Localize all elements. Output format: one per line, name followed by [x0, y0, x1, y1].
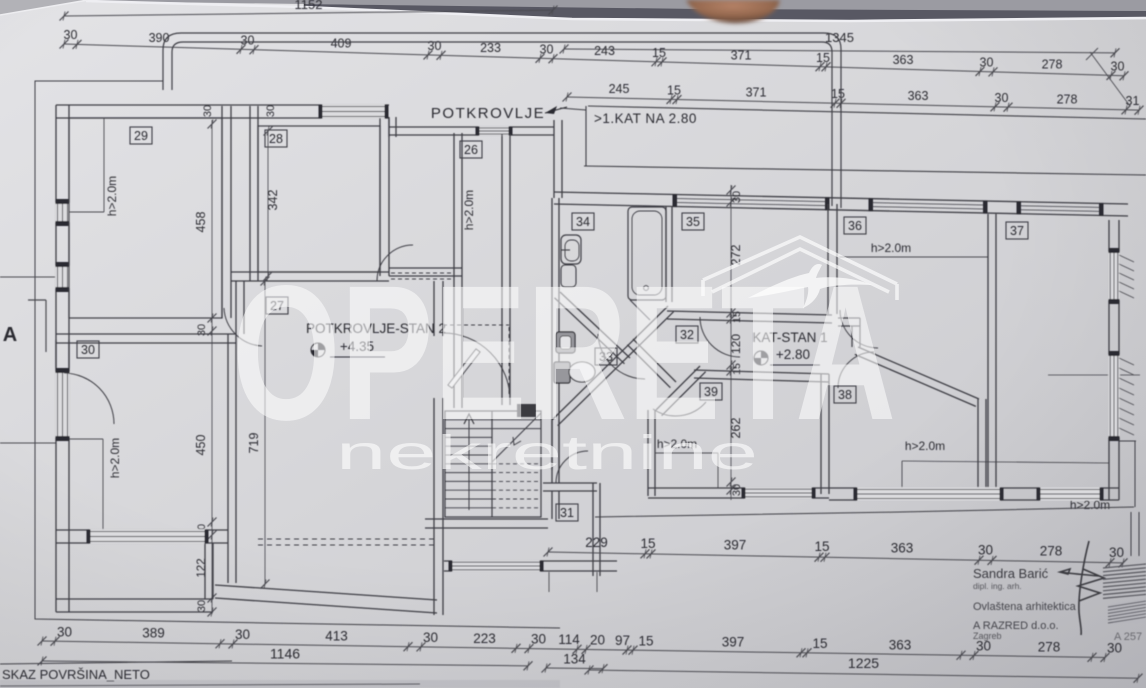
- svg-text:30: 30: [980, 56, 994, 70]
- svg-text:278: 278: [1038, 640, 1061, 655]
- svg-text:30: 30: [1111, 60, 1125, 74]
- svg-text:15: 15: [667, 83, 681, 97]
- svg-text:371: 371: [746, 85, 767, 99]
- svg-text:37: 37: [1010, 224, 1024, 238]
- svg-text:30: 30: [540, 42, 554, 56]
- svg-text:29: 29: [134, 129, 148, 143]
- svg-text:342: 342: [266, 190, 280, 211]
- svg-text:nekretnine: nekretnine: [336, 427, 758, 480]
- svg-text:15: 15: [638, 633, 653, 648]
- svg-text:31: 31: [1126, 94, 1140, 108]
- svg-text:245: 245: [609, 82, 630, 96]
- svg-text:15: 15: [831, 87, 845, 101]
- svg-text:363: 363: [891, 541, 914, 556]
- svg-text:30: 30: [196, 600, 208, 612]
- svg-text:dipl. ing. arh.: dipl. ing. arh.: [973, 581, 1022, 591]
- svg-text:1345: 1345: [825, 30, 854, 45]
- svg-text:15: 15: [652, 46, 666, 60]
- svg-text:35: 35: [686, 215, 700, 229]
- svg-text:363: 363: [908, 89, 929, 103]
- svg-text:1225: 1225: [848, 655, 879, 671]
- svg-text:Sandra Barić: Sandra Barić: [973, 566, 1049, 581]
- svg-text:278: 278: [1057, 93, 1078, 107]
- svg-text:363: 363: [889, 637, 912, 652]
- svg-text:POTKROVLJE: POTKROVLJE: [431, 105, 545, 122]
- svg-text:30: 30: [235, 627, 250, 642]
- svg-text:1146: 1146: [270, 645, 300, 661]
- svg-text:Zagreb: Zagreb: [973, 631, 1002, 641]
- svg-text:30: 30: [731, 191, 743, 203]
- svg-text:31: 31: [560, 506, 574, 520]
- svg-text:278: 278: [1042, 58, 1063, 72]
- svg-text:389: 389: [142, 626, 165, 641]
- svg-text:26: 26: [464, 143, 478, 157]
- svg-text:30: 30: [731, 484, 743, 496]
- svg-text:397: 397: [724, 538, 747, 553]
- svg-text:30: 30: [1109, 545, 1124, 560]
- svg-text:h>2.0m: h>2.0m: [105, 176, 119, 216]
- svg-text:h>2.0m: h>2.0m: [1070, 498, 1110, 512]
- svg-text:SKAZ POVRŠINA_NETO: SKAZ POVRŠINA_NETO: [2, 667, 150, 682]
- svg-text:30: 30: [978, 542, 993, 557]
- svg-text:30: 30: [423, 630, 438, 645]
- svg-text:413: 413: [325, 629, 348, 644]
- svg-text:30: 30: [265, 105, 277, 117]
- svg-text:114: 114: [558, 632, 580, 647]
- svg-text:h>2.0m: h>2.0m: [462, 190, 476, 230]
- svg-text:450: 450: [194, 435, 208, 456]
- svg-text:36: 36: [848, 219, 862, 233]
- svg-text:30: 30: [241, 34, 255, 48]
- svg-text:h>2.0m: h>2.0m: [905, 439, 945, 453]
- svg-text:458: 458: [194, 212, 208, 233]
- svg-text:30: 30: [995, 91, 1009, 105]
- svg-text:1152: 1152: [295, 0, 323, 12]
- svg-text:30: 30: [57, 624, 72, 639]
- svg-text:30: 30: [531, 632, 546, 647]
- svg-text:223: 223: [473, 631, 496, 646]
- svg-text:34: 34: [576, 215, 590, 229]
- svg-text:278: 278: [1040, 544, 1063, 559]
- svg-text:>1.KAT NA 2.80: >1.KAT NA 2.80: [594, 111, 697, 126]
- svg-text:15: 15: [814, 539, 829, 554]
- svg-text:30: 30: [202, 105, 214, 117]
- svg-text:97: 97: [615, 633, 630, 648]
- svg-text:371: 371: [731, 48, 752, 62]
- svg-text:15: 15: [812, 636, 827, 651]
- svg-text:20: 20: [590, 633, 605, 648]
- svg-text:229: 229: [585, 535, 608, 550]
- svg-text:397: 397: [722, 635, 745, 650]
- svg-text:A 257: A 257: [1114, 631, 1142, 643]
- svg-text:A: A: [3, 324, 17, 346]
- svg-text:Ovlaštena arhitektica: Ovlaštena arhitektica: [973, 601, 1077, 613]
- svg-text:15: 15: [816, 51, 830, 65]
- svg-text:134: 134: [563, 651, 586, 666]
- svg-text:15: 15: [640, 536, 655, 551]
- svg-text:30: 30: [81, 343, 95, 357]
- svg-text:122: 122: [196, 558, 208, 577]
- svg-text:h>2.0m: h>2.0m: [108, 438, 122, 478]
- svg-text:363: 363: [893, 53, 914, 67]
- svg-text:243: 243: [594, 44, 615, 58]
- svg-text:233: 233: [480, 41, 501, 55]
- svg-text:30: 30: [64, 28, 78, 42]
- svg-text:409: 409: [331, 36, 352, 50]
- svg-text:28: 28: [269, 132, 283, 146]
- svg-text:30: 30: [428, 39, 442, 53]
